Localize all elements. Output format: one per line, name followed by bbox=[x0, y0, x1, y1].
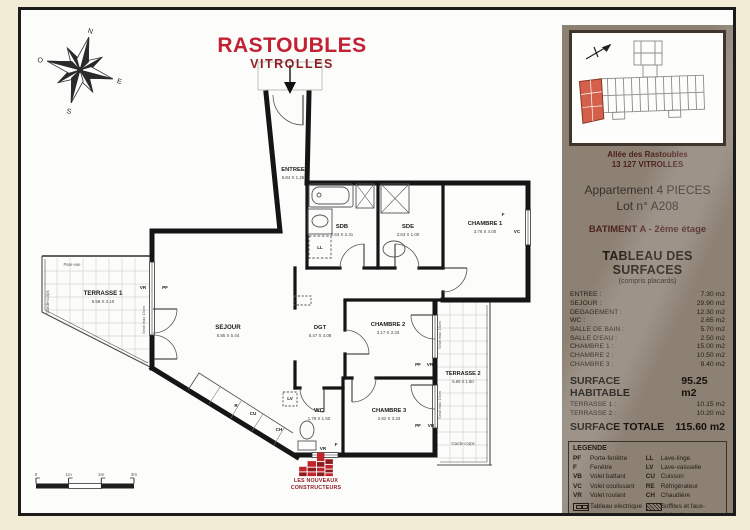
title-block: RASTOUBLES VITROLLES bbox=[212, 34, 372, 71]
room-label-sde: SDE bbox=[402, 224, 414, 230]
compass-rose: N E S O bbox=[32, 22, 128, 118]
washbasin-sde bbox=[383, 241, 405, 257]
address-street: Allée des Rastoubles bbox=[568, 150, 727, 160]
room-label-wc: WC bbox=[314, 408, 324, 414]
scale-bar: 0 1m 2m 3m bbox=[30, 470, 140, 494]
info-sidebar: Allée des Rastoubles 13 127 VITROLLES Ap… bbox=[562, 25, 733, 513]
address-block: Allée des Rastoubles 13 127 VITROLLES bbox=[568, 150, 727, 170]
pf-label-chambre2: PF bbox=[415, 362, 421, 367]
apartment-block: Appartement 4 PIECES Lot n° A208 bbox=[568, 183, 727, 214]
toilet bbox=[300, 421, 314, 439]
room-label-sdb: SDB bbox=[336, 224, 348, 230]
surface-row: CHAMBRE 2 :10.50 m2 bbox=[570, 352, 725, 361]
pf-label-sejour: PF bbox=[162, 285, 168, 290]
legend-row: VBVolet battant CUCuisson bbox=[573, 472, 722, 481]
compass-s: S bbox=[66, 108, 73, 116]
f-label-wc: F bbox=[335, 442, 338, 447]
surface-row: WC :2.65 m2 bbox=[570, 317, 725, 326]
surface-row: SALLE DE BAIN :5.70 m2 bbox=[570, 326, 725, 335]
windows bbox=[150, 210, 531, 458]
pf-label-chambre3: PF bbox=[415, 423, 421, 428]
room-dims-dgt: 5.47 X 4.08 bbox=[309, 333, 332, 338]
surfaces-title: TABLEAU DES SURFACES bbox=[568, 249, 727, 277]
cu-label: CU bbox=[250, 411, 257, 416]
room-label-entree: ENTREE bbox=[281, 167, 305, 173]
room-dims-chambre3: 2.82 X 3.33 bbox=[378, 416, 401, 421]
compass-o: O bbox=[36, 57, 44, 65]
room-label-terrasse2: TERRASSE 2 bbox=[445, 371, 480, 377]
plan-sheet: ENTREE 5.84 X 1.25 SDB 2.63 X 2.41 SDE 2… bbox=[18, 7, 736, 516]
legend-title: LEGENDE bbox=[573, 445, 722, 452]
room-dims-sdb: 2.63 X 2.41 bbox=[331, 232, 354, 237]
f-label-chambre1: F bbox=[502, 212, 505, 217]
logo-blocks-icon bbox=[297, 448, 335, 478]
legend-icon-row: Tableau electrique Soffites et faux-plaf… bbox=[573, 502, 722, 513]
room-dims-terrasse1: 5.58 X 3.10 bbox=[92, 299, 115, 304]
north-arrow-icon bbox=[586, 45, 610, 59]
building-floor: BATIMENT A - 2ème étage bbox=[568, 224, 727, 235]
legend-row: VRVolet roulant CHChaudière bbox=[573, 491, 722, 500]
seuil-label-t2b: Seuil max 15cm bbox=[437, 391, 442, 419]
scale-3m: 3m bbox=[131, 472, 138, 477]
apartment-type: Appartement 4 PIECES bbox=[568, 183, 727, 199]
exterior-walls bbox=[152, 93, 528, 457]
room-label-terrasse1: TERRASSE 1 bbox=[84, 290, 123, 297]
scale-1m: 1m bbox=[65, 472, 72, 477]
logo-text: LES NOUVEAUX CONSTRUCTEURS bbox=[273, 478, 359, 492]
legend-row: VCVolet coulissant RERéfrigérateur bbox=[573, 482, 722, 491]
terrace1-tiles bbox=[42, 256, 150, 368]
room-dims-entree: 5.84 X 1.25 bbox=[282, 175, 305, 180]
ch-label: CH bbox=[276, 427, 283, 432]
surface-row: CHAMBRE 3 :9.40 m2 bbox=[570, 361, 725, 370]
seuil-label-t1: Seuil max 15cm bbox=[141, 306, 146, 334]
vr-label-chambre3: VR bbox=[428, 423, 435, 428]
surface-totale-row: SURFACE TOTALE 115.60 m2 bbox=[568, 421, 727, 433]
terrace-row: TERRASSE 2 :10.20 m2 bbox=[570, 410, 725, 419]
room-dims-terrasse2: 5.69 X 1.80 bbox=[452, 379, 474, 384]
lot-number: Lot n° A208 bbox=[568, 199, 727, 215]
room-dims-sejour: 6.85 X 5.44 bbox=[217, 333, 240, 338]
lv-label: LV bbox=[287, 396, 293, 401]
scale-2m: 2m bbox=[98, 472, 105, 477]
legend-box: LEGENDE PFPorte-fenêtre LLLave-linge FFe… bbox=[568, 441, 727, 513]
room-dims-sde: 2.63 X 1.00 bbox=[397, 232, 420, 237]
garde-corps-label-t1: Garde-corps bbox=[45, 290, 50, 313]
interior-walls bbox=[295, 183, 443, 455]
vr-label-chambre2: VR bbox=[427, 362, 434, 367]
site-key-plan bbox=[569, 30, 726, 146]
soffites-icon bbox=[646, 503, 662, 511]
surfaces-subtitle: (compris placards) bbox=[568, 278, 727, 285]
legend-row: FFenêtre LVLave-vaisselle bbox=[573, 463, 722, 472]
highlighted-lot bbox=[579, 79, 604, 124]
ll-label: LL bbox=[317, 245, 323, 250]
room-label-chambre2: CHAMBRE 2 bbox=[371, 322, 405, 328]
project-title: RASTOUBLES bbox=[212, 34, 372, 57]
legend-row: PFPorte-fenêtre LLLave-linge bbox=[573, 454, 722, 463]
entrance-arrow-icon bbox=[284, 82, 296, 94]
surfaces-table: ENTREE :7.30 m2 SEJOUR :29.90 m2 DEGAGEM… bbox=[568, 291, 727, 369]
address-city: 13 127 VITROLLES bbox=[568, 160, 727, 170]
surface-habitable-row: SURFACE HABITABLE 95.25 m2 bbox=[568, 375, 727, 399]
tableau-electrique-icon bbox=[573, 503, 589, 511]
vr-label-sejour: VR bbox=[140, 285, 147, 290]
garde-corps-label-t2: Garde-corps bbox=[451, 441, 474, 446]
terrace-rows: TERRASSE 1 :10.15 m2 TERRASSE 2 :10.20 m… bbox=[568, 401, 727, 418]
compass-n: N bbox=[87, 28, 94, 36]
scale-0: 0 bbox=[35, 472, 38, 477]
surface-row: ENTREE :7.30 m2 bbox=[570, 291, 725, 300]
room-label-sejour: SEJOUR bbox=[215, 324, 241, 331]
building-footprint bbox=[599, 41, 704, 120]
terrace-row: TERRASSE 1 :10.15 m2 bbox=[570, 401, 725, 410]
room-dims-wc: 1.78 X 1.50 bbox=[308, 416, 331, 421]
seuil-label-t2a: Seuil max 15cm bbox=[437, 321, 442, 349]
room-label-chambre1: CHAMBRE 1 bbox=[468, 221, 503, 227]
room-label-chambre3: CHAMBRE 3 bbox=[372, 408, 407, 414]
project-city: VITROLLES bbox=[212, 57, 372, 71]
room-dims-chambre2: 3.17 X 3.33 bbox=[377, 330, 400, 335]
surface-row: CHAMBRE 1 :15.00 m2 bbox=[570, 343, 725, 352]
developer-logo: LES NOUVEAUX CONSTRUCTEURS bbox=[273, 448, 359, 492]
vc-label-chambre1: VC bbox=[514, 229, 521, 234]
pare-vue-label: Pare-vue bbox=[64, 262, 82, 267]
compass-e: E bbox=[116, 78, 123, 86]
room-dims-chambre1: 3.76 X 4.00 bbox=[474, 229, 497, 234]
surface-row: SALLE D'EAU :2.50 m2 bbox=[570, 335, 725, 344]
surface-row: DEGAGEMENT :12.30 m2 bbox=[570, 309, 725, 318]
terrace1-railing bbox=[42, 256, 151, 367]
surface-row: SEJOUR :29.90 m2 bbox=[570, 300, 725, 309]
room-label-dgt: DGT bbox=[314, 325, 327, 331]
r-label: R bbox=[234, 403, 238, 408]
